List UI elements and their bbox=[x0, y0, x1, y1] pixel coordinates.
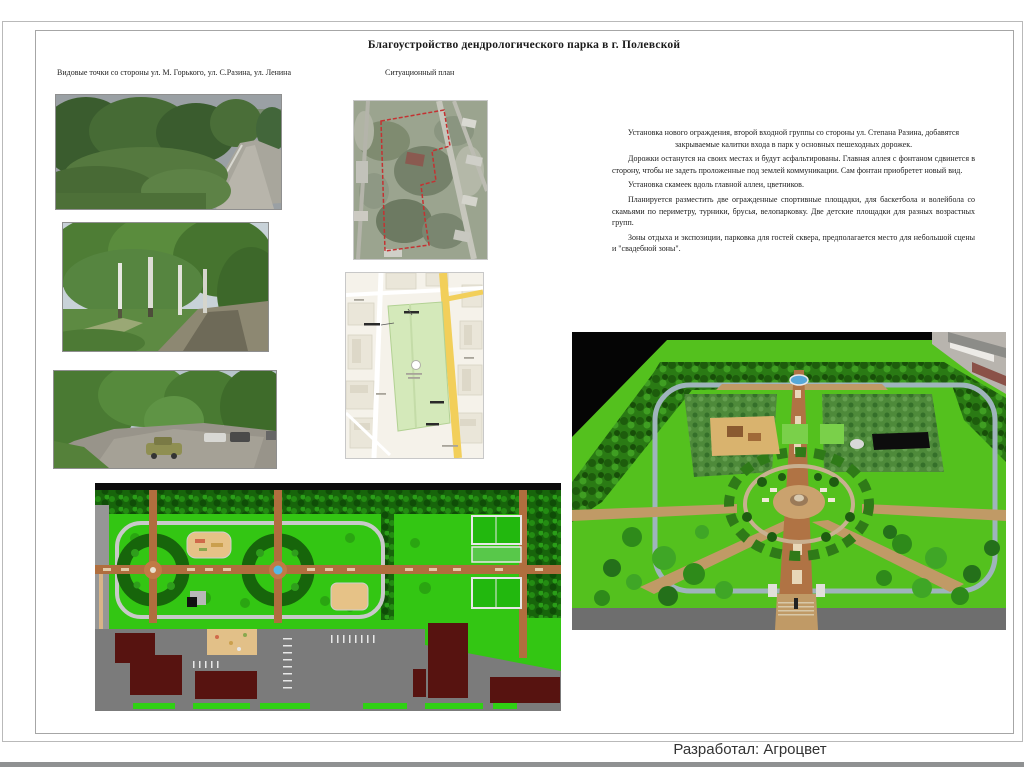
slide-page: Благоустройство дендрологического парка … bbox=[0, 0, 1024, 767]
park-3d-render-art bbox=[572, 332, 1006, 630]
photo-street-view-1 bbox=[55, 94, 282, 210]
master-plan-2d-art bbox=[95, 483, 561, 711]
render-fountain bbox=[794, 495, 804, 502]
master-plan-2d bbox=[95, 483, 561, 711]
photo-street-view-2-art bbox=[63, 223, 268, 351]
description-paragraph: Дорожки останутся на своих местах и буду… bbox=[612, 153, 975, 176]
project-description: Установка нового ограждения, второй вход… bbox=[612, 127, 975, 258]
plan-sport-courts bbox=[472, 516, 521, 608]
satellite-image bbox=[353, 100, 488, 260]
photo-street-view-1-art bbox=[56, 95, 281, 209]
city-map-art bbox=[346, 273, 483, 458]
description-paragraph: Зоны отдыха и экспозиции, парковка для г… bbox=[612, 232, 975, 255]
viewpoints-caption: Видовые точки со стороны ул. М. Горького… bbox=[57, 68, 387, 77]
developer-credit: Разработал: Агроцвет bbox=[520, 741, 980, 758]
satellite-image-art bbox=[354, 101, 487, 259]
photo-street-view-2 bbox=[62, 222, 269, 352]
render-upper-fountain bbox=[790, 375, 808, 385]
render-stage bbox=[872, 432, 930, 450]
situational-plan-caption: Ситуационный план bbox=[385, 68, 505, 77]
photo-street-view-3-art bbox=[54, 371, 276, 468]
page-title: Благоустройство дендрологического парка … bbox=[36, 39, 1012, 51]
viewer-bottom-bar bbox=[0, 762, 1024, 767]
description-paragraph: Планируется разместить две огражденные с… bbox=[612, 194, 975, 229]
description-paragraph: Установка нового ограждения, второй вход… bbox=[612, 127, 975, 150]
park-3d-render bbox=[572, 332, 1006, 630]
description-paragraph: Установка скамеек вдоль главной аллеи, ц… bbox=[612, 179, 975, 191]
city-map bbox=[345, 272, 484, 459]
plan-playground-1 bbox=[187, 532, 231, 558]
map-park-marker bbox=[412, 361, 421, 370]
photo-street-view-3 bbox=[53, 370, 277, 469]
render-playground bbox=[710, 416, 780, 456]
plan-playground-2 bbox=[331, 583, 368, 610]
plan-fountain bbox=[274, 566, 283, 575]
